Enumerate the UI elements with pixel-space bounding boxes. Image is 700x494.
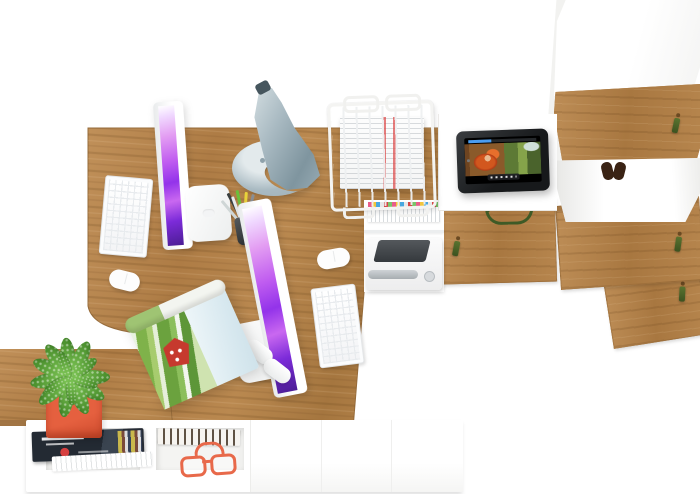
shelf-divider bbox=[364, 230, 444, 233]
control-glyphs bbox=[491, 176, 517, 179]
desk-lamp bbox=[226, 84, 342, 206]
key-grid bbox=[103, 179, 149, 253]
printer-lid bbox=[373, 240, 430, 262]
glasses-lens-left bbox=[180, 455, 207, 478]
key-grid bbox=[315, 288, 360, 364]
tall-cabinet-door bbox=[554, 84, 700, 164]
glasses-strap bbox=[194, 441, 225, 458]
camera-dot bbox=[467, 159, 470, 162]
wire-paper-tray bbox=[327, 100, 437, 212]
key-tassel bbox=[672, 118, 681, 134]
tray-frame bbox=[327, 100, 437, 212]
tall-cabinet-open-shelf bbox=[554, 158, 700, 222]
printer bbox=[366, 238, 442, 290]
tablet bbox=[456, 128, 550, 193]
mouse-seam bbox=[332, 251, 335, 262]
tray-handle bbox=[385, 94, 422, 112]
bench-closed-front bbox=[250, 420, 463, 492]
key-tassel bbox=[452, 241, 461, 257]
panel-seam bbox=[391, 420, 392, 492]
scene bbox=[0, 0, 700, 494]
glasses-bridge bbox=[202, 460, 211, 464]
safety-glasses bbox=[177, 445, 237, 475]
tablet-screen bbox=[464, 136, 542, 185]
key-tassel bbox=[674, 236, 682, 252]
tall-cabinet-top bbox=[554, 0, 700, 96]
tray-leg bbox=[397, 204, 429, 217]
video-frame bbox=[464, 142, 541, 177]
plush-toy bbox=[602, 162, 628, 184]
video-controls bbox=[487, 173, 519, 180]
bench-opening-right bbox=[156, 428, 244, 470]
tray-leg bbox=[343, 206, 375, 219]
keyboard-left bbox=[99, 175, 154, 258]
keyboard-right bbox=[310, 284, 364, 369]
lamp-screw bbox=[260, 158, 265, 163]
mouse-seam bbox=[124, 273, 128, 284]
tray-handle bbox=[343, 95, 380, 113]
key-tassel bbox=[679, 286, 686, 301]
potted-plant bbox=[20, 314, 120, 444]
printer-handle bbox=[368, 270, 418, 279]
panel-seam bbox=[321, 420, 322, 492]
printer-knob bbox=[424, 271, 435, 282]
